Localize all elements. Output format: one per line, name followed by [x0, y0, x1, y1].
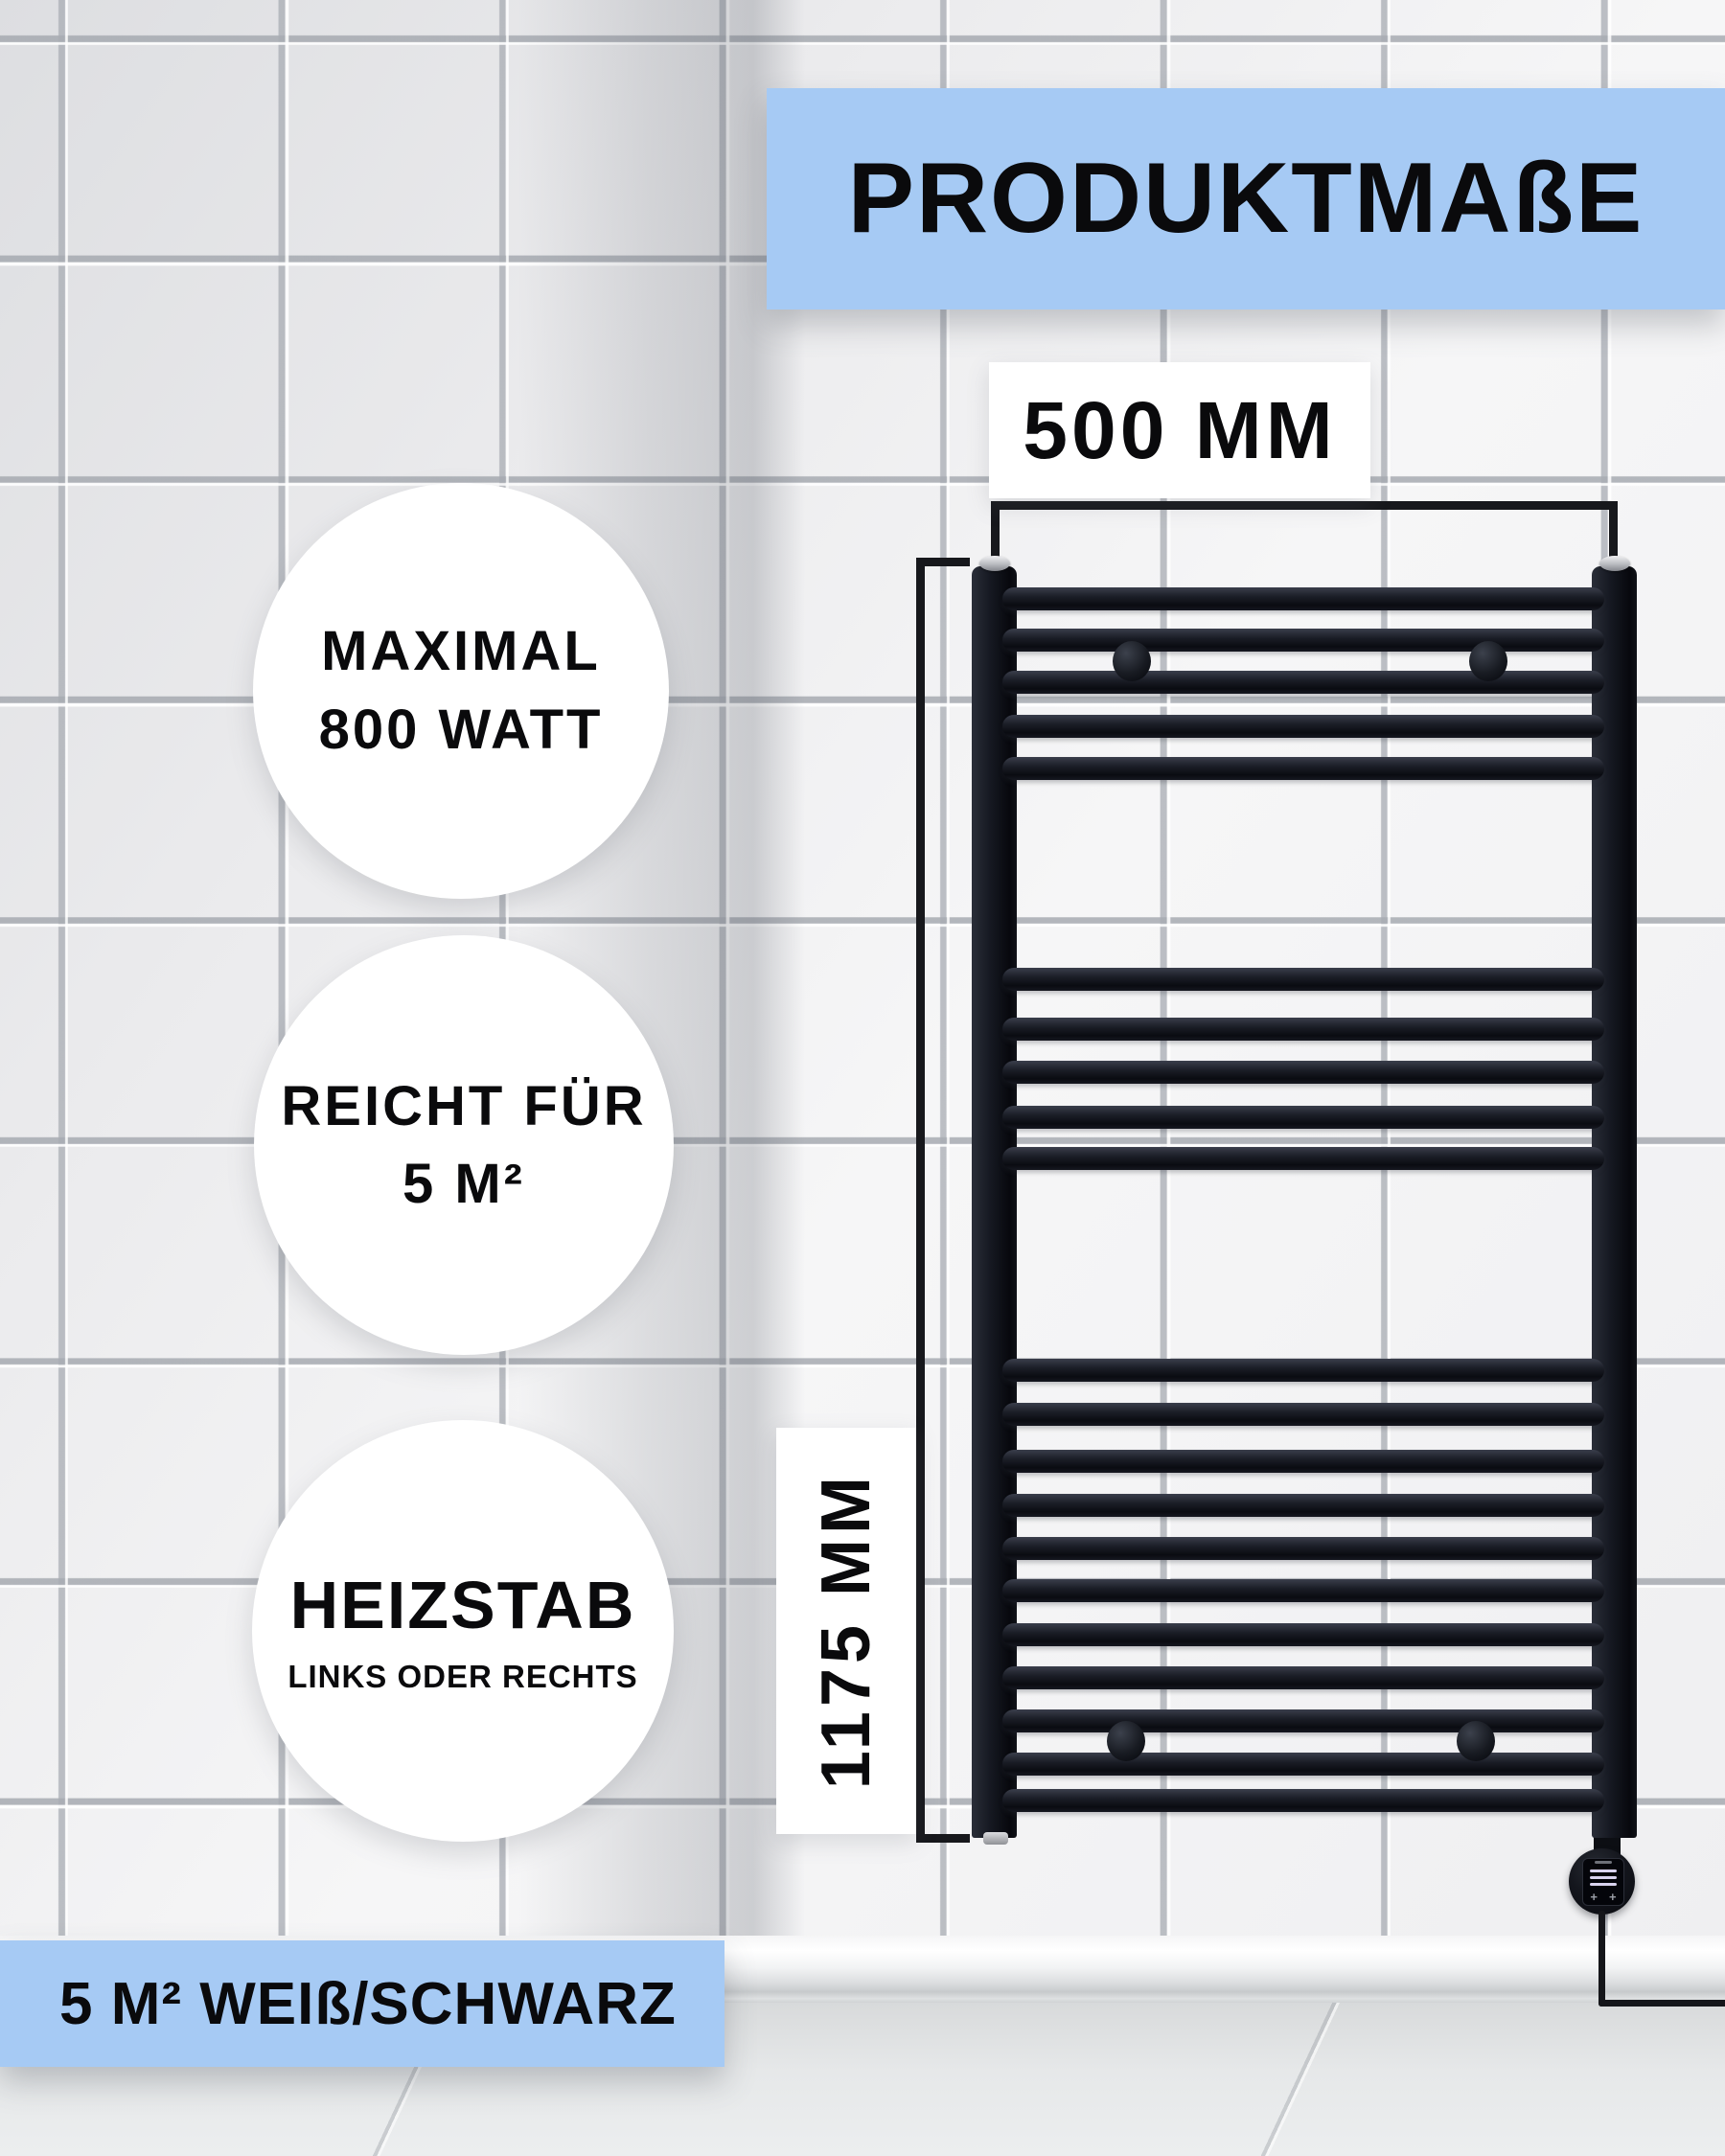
badge-room-size: REICHT FÜR 5 M²: [254, 935, 674, 1355]
radiator-rail: [1002, 1359, 1604, 1382]
radiator-rail: [1002, 629, 1604, 652]
footer-text: 5 M² WEIß/SCHWARZ: [59, 1970, 677, 2038]
badge-line: HEIZSTAB: [290, 1567, 636, 1643]
title-text: PRODUKTMAßE: [848, 142, 1644, 256]
radiator-rail: [1002, 715, 1604, 738]
heating-element-buttons: + +: [1590, 1891, 1616, 1903]
title-banner: PRODUKTMAßE: [767, 88, 1725, 310]
radiator-rail: [1002, 757, 1604, 780]
plus-button-icon: +: [1590, 1891, 1598, 1903]
radiator-rail: [1002, 1537, 1604, 1560]
wall-bracket-knob: [1469, 641, 1507, 681]
heating-element-logo: [1595, 1861, 1612, 1864]
product-infographic: + + 500 MM 1175 MM PRODUKTMAßE 5 M² WEIß…: [0, 0, 1725, 2156]
badge-line: LINKS ODER RECHTS: [287, 1659, 637, 1695]
radiator-right-post: [1592, 566, 1637, 1838]
badge-line: REICHT FÜR: [281, 1067, 646, 1145]
badge-line: 5 M²: [402, 1145, 525, 1223]
footer-banner: 5 M² WEIß/SCHWARZ: [0, 1940, 724, 2067]
height-dimension-label: 1175 MM: [776, 1428, 916, 1834]
power-cable-horizontal: [1598, 2000, 1725, 2007]
badge-line: MAXIMAL: [321, 612, 601, 691]
radiator-rail: [1002, 1579, 1604, 1602]
display-stripe: [1590, 1883, 1617, 1886]
width-dimension-label: 500 MM: [989, 362, 1370, 498]
wall-bracket-knob: [1107, 1721, 1145, 1761]
width-value: 500 MM: [1023, 384, 1336, 477]
radiator-rail: [1002, 1450, 1604, 1473]
radiator-rail: [1002, 1789, 1604, 1812]
radiator-rail: [1002, 1018, 1604, 1041]
display-stripe: [1590, 1869, 1617, 1872]
wall-bracket-knob: [1113, 641, 1151, 681]
radiator-rail: [1002, 671, 1604, 694]
radiator-rail: [1002, 1623, 1604, 1646]
wall-bracket-knob: [1457, 1721, 1495, 1761]
power-cable-vertical: [1598, 1911, 1605, 2007]
heating-element-display: + +: [1582, 1858, 1624, 1906]
radiator-rail: [1002, 1709, 1604, 1732]
badge-max-watt: MAXIMAL 800 WATT: [253, 483, 669, 899]
display-stripe: [1590, 1876, 1617, 1879]
radiator-left-cap: [979, 556, 1010, 571]
height-measure-bracket: [916, 558, 970, 1843]
radiator-rail: [1002, 587, 1604, 610]
radiator-rail: [1002, 1753, 1604, 1776]
radiator-rail: [1002, 1666, 1604, 1689]
plus-button-icon: +: [1609, 1891, 1617, 1903]
radiator-rail: [1002, 1106, 1604, 1129]
badge-line: 800 WATT: [319, 691, 604, 769]
radiator-rail: [1002, 1494, 1604, 1517]
radiator-rail: [1002, 1147, 1604, 1170]
heating-element: + +: [1569, 1848, 1635, 1915]
height-value: 1175 MM: [807, 1472, 885, 1789]
radiator-rail: [1002, 1061, 1604, 1084]
radiator-bottom-valve: [983, 1832, 1008, 1845]
width-measure-bracket: [991, 501, 1618, 559]
radiator-rail: [1002, 1403, 1604, 1426]
badge-heizstab: HEIZSTAB LINKS ODER RECHTS: [252, 1420, 674, 1842]
radiator-rail: [1002, 968, 1604, 991]
radiator-right-cap: [1599, 556, 1630, 571]
